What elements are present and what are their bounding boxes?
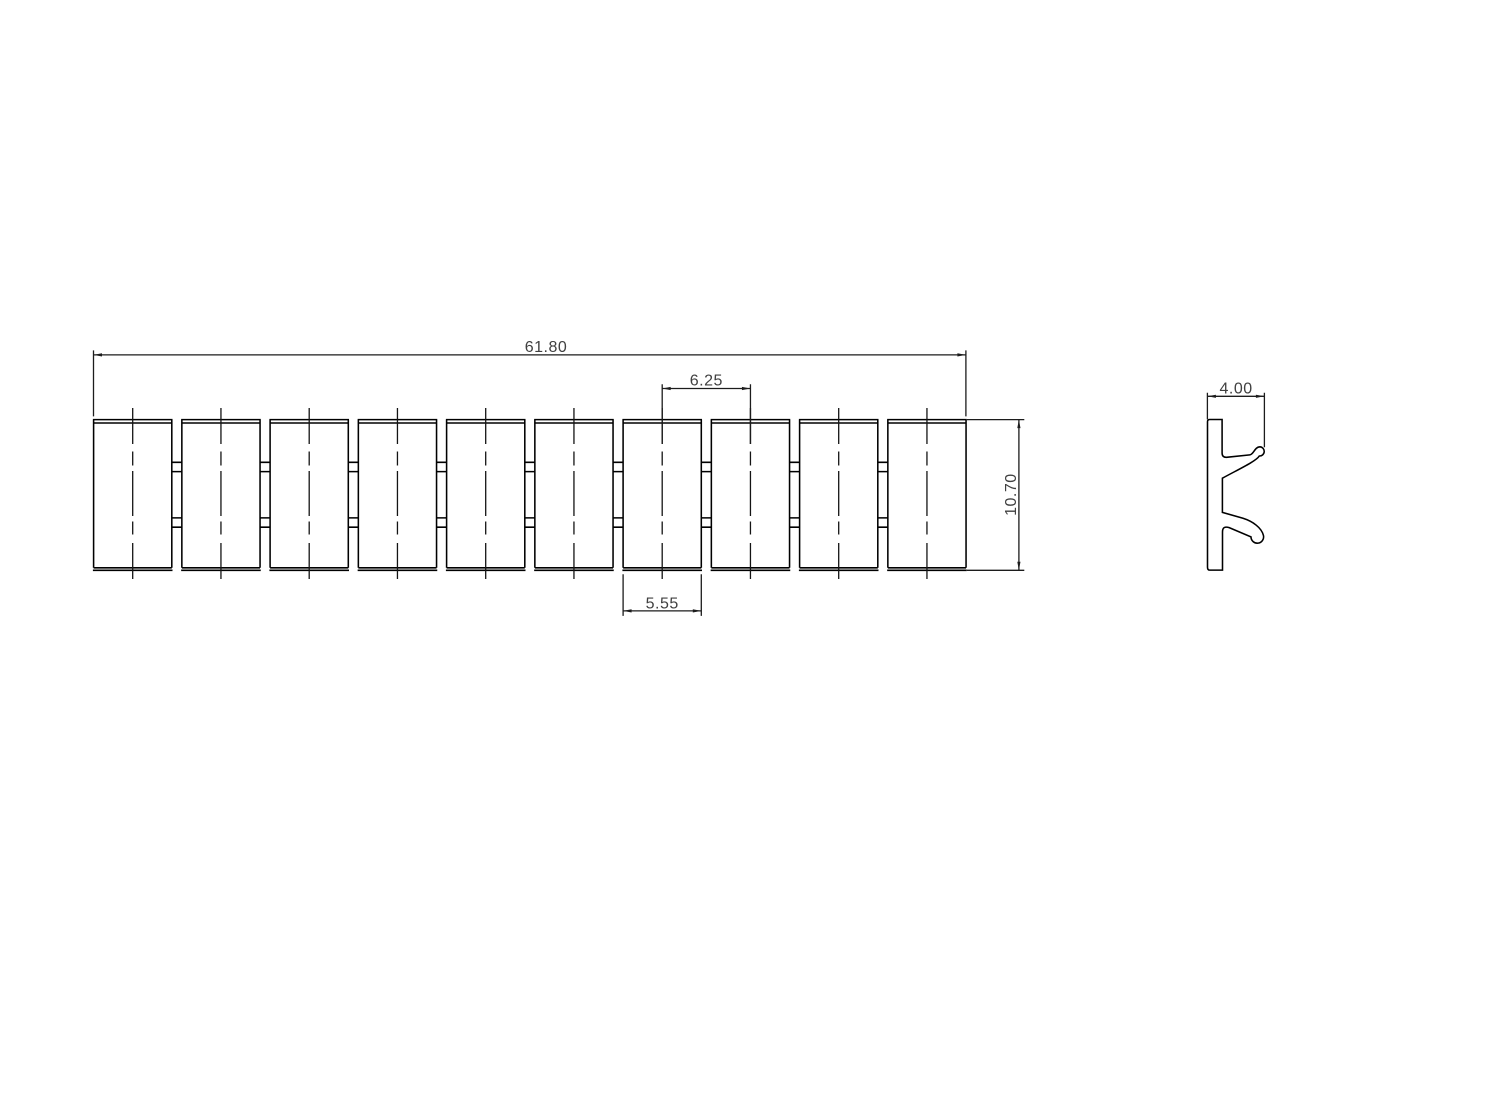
svg-text:10.70: 10.70: [1003, 473, 1020, 516]
svg-text:5.55: 5.55: [646, 595, 679, 612]
svg-text:6.25: 6.25: [690, 373, 723, 390]
svg-text:4.00: 4.00: [1220, 380, 1253, 397]
svg-text:61.80: 61.80: [525, 339, 568, 356]
